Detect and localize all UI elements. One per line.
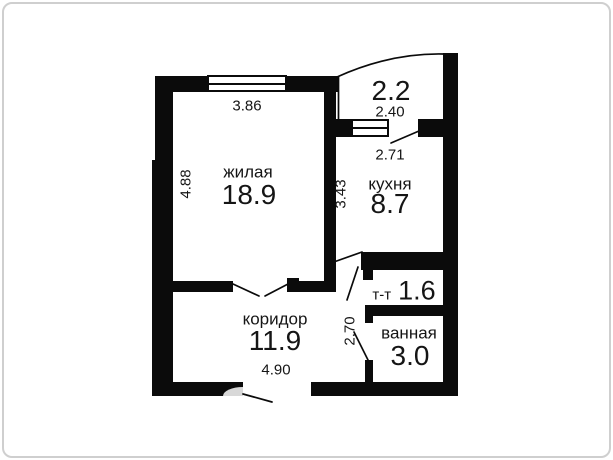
kitchen-height-dimension: 3.43: [334, 179, 349, 208]
kitchen-door-leaf: [331, 252, 362, 263]
toilet-door-leaf: [347, 267, 358, 300]
balcony-width-dimension: 2.40: [375, 105, 404, 120]
bathroom-area-value: 3.0: [391, 342, 430, 370]
living-door-leaf-left: [233, 284, 259, 296]
living-width-dimension: 3.86: [232, 99, 261, 114]
living-area-value: 18.9: [222, 181, 277, 209]
balcony-outer-arc: [337, 54, 443, 77]
toilet-label-row: т-т 1.6: [372, 278, 435, 305]
corridor-width-dimension: 4.90: [261, 363, 290, 378]
corridor-height-dimension: 2.70: [343, 316, 358, 345]
kitchen-width-dimension: 2.71: [375, 148, 404, 163]
entrance-door-swing-arc: [223, 387, 243, 396]
living-height-dimension: 4.88: [179, 169, 194, 198]
corridor-area-value: 11.9: [249, 327, 301, 355]
toilet-room-label: т-т: [372, 288, 391, 303]
bathroom-room-label: ванная: [381, 325, 437, 342]
living-door-leaf-right: [265, 284, 288, 296]
toilet-area-value: 1.6: [398, 278, 436, 305]
balcony-door-leaf: [391, 131, 419, 143]
balcony-area-value: 2.2: [372, 77, 411, 105]
entrance-door-leaf: [243, 394, 272, 402]
kitchen-area-value: 8.7: [371, 190, 410, 218]
plan-lines-layer: [0, 0, 613, 460]
floor-plan-canvas: 3.86 жилая 18.9 4.88 2.2 2.40 2.71 кухня…: [0, 0, 613, 460]
living-room-label: жилая: [223, 164, 272, 181]
